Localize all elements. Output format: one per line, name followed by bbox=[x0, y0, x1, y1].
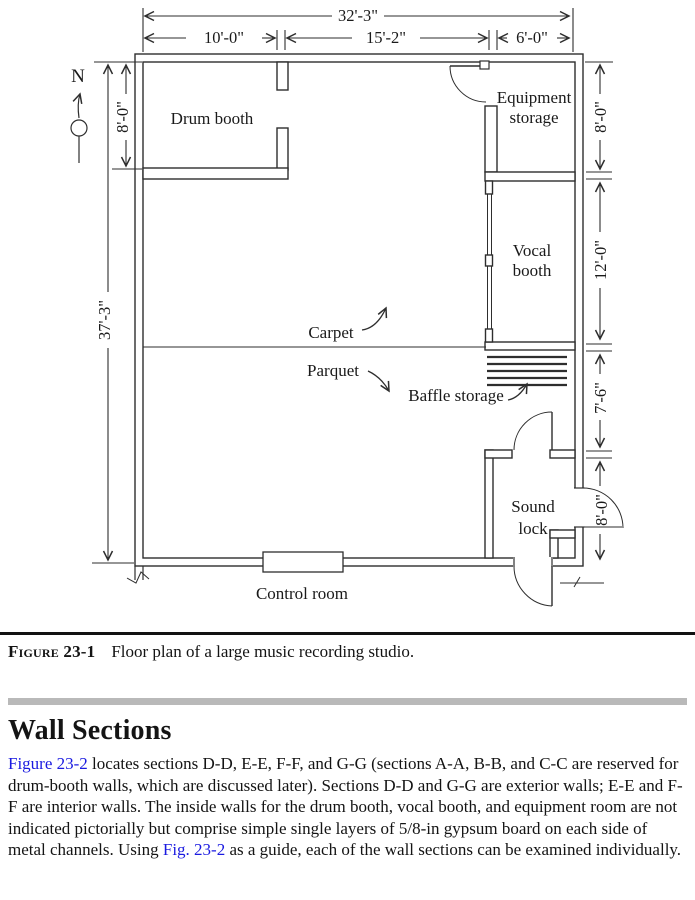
dim-vocal-booth-height: 12'-0" bbox=[591, 240, 610, 280]
dim-right-rooms-width: 6'-0" bbox=[516, 28, 548, 47]
fig-23-2-link[interactable]: Fig. 23-2 bbox=[163, 840, 225, 859]
dim-baffle-area-height: 7'-6" bbox=[591, 382, 610, 414]
figure-caption-label: Figure 23-1 bbox=[8, 642, 95, 661]
control-room-label: Control room bbox=[256, 584, 348, 603]
baffle-storage-label: Baffle storage bbox=[408, 386, 504, 405]
equipment-storage-label-2: storage bbox=[509, 108, 558, 127]
body-text-run-2: as a guide, each of the wall sections ca… bbox=[225, 840, 681, 859]
vocal-window-post-bottom bbox=[486, 329, 493, 342]
figure-caption: Figure 23-1Floor plan of a large music r… bbox=[8, 642, 687, 662]
vocal-booth-label-2: booth bbox=[513, 261, 552, 280]
sound-lock-top-left-stub bbox=[485, 450, 512, 458]
outer-wall bbox=[135, 54, 583, 566]
vocal-window-post-mid bbox=[486, 255, 493, 266]
drum-booth-wall-bottom bbox=[143, 168, 288, 179]
north-arrow-circle bbox=[71, 120, 87, 136]
drum-booth-wall-lower bbox=[277, 128, 288, 170]
equipment-storage-label-1: Equipment bbox=[497, 88, 572, 107]
floor-plan-svg: N bbox=[0, 0, 695, 632]
figure-caption-text: Floor plan of a large music recording st… bbox=[111, 642, 414, 661]
walls bbox=[135, 54, 583, 566]
sound-lock-bottom-door bbox=[514, 566, 552, 606]
figure-23-2-link[interactable]: Figure 23-2 bbox=[8, 754, 88, 773]
north-arrow: N bbox=[71, 66, 87, 163]
vocal-booth-bottom-wall bbox=[485, 342, 575, 350]
vocal-booth-label-1: Vocal bbox=[513, 241, 552, 260]
north-arrow-line bbox=[78, 94, 80, 118]
sound-lock-top-right-stub bbox=[550, 450, 575, 458]
sound-lock-alcove-stub-h bbox=[550, 530, 575, 538]
north-label: N bbox=[71, 66, 85, 87]
section-divider-bar bbox=[8, 698, 687, 705]
body-paragraph: Figure 23-2 locates sections D-D, E-E, F… bbox=[8, 753, 687, 861]
dim-studio-width: 15'-2" bbox=[366, 28, 406, 47]
equipment-storage-left-wall bbox=[485, 106, 497, 172]
floor-plan-figure: N bbox=[0, 0, 695, 632]
section-heading: Wall Sections bbox=[8, 715, 687, 747]
sound-lock-label-2: lock bbox=[518, 519, 548, 538]
dim-overall-height: 37'-3" bbox=[95, 300, 114, 340]
drum-booth-wall-upper bbox=[277, 62, 288, 90]
dim-sound-lock-height: 8'-0" bbox=[592, 494, 611, 526]
wall-break-mark-left bbox=[127, 572, 149, 583]
carpet-label: Carpet bbox=[308, 323, 354, 342]
dim-drum-booth-width: 10'-0" bbox=[204, 28, 244, 47]
dim-overall-width: 32'-3" bbox=[338, 6, 378, 25]
parquet-label: Parquet bbox=[307, 361, 359, 380]
figure-rule bbox=[0, 632, 695, 635]
equipment-vocal-divider-wall bbox=[485, 172, 575, 181]
drum-booth-label: Drum booth bbox=[171, 109, 254, 128]
dim-drum-booth-height: 8'-0" bbox=[113, 101, 132, 133]
sound-lock-label-1: Sound bbox=[511, 497, 555, 516]
page: { "figure": { "north": "N", "dimensions"… bbox=[0, 0, 695, 861]
dim-equipment-storage-height: 8'-0" bbox=[591, 101, 610, 133]
wall-break-mark-right bbox=[574, 577, 580, 587]
vocal-window-post-top bbox=[486, 181, 493, 194]
control-room-window bbox=[263, 552, 343, 572]
sound-lock-left-wall bbox=[485, 450, 493, 558]
